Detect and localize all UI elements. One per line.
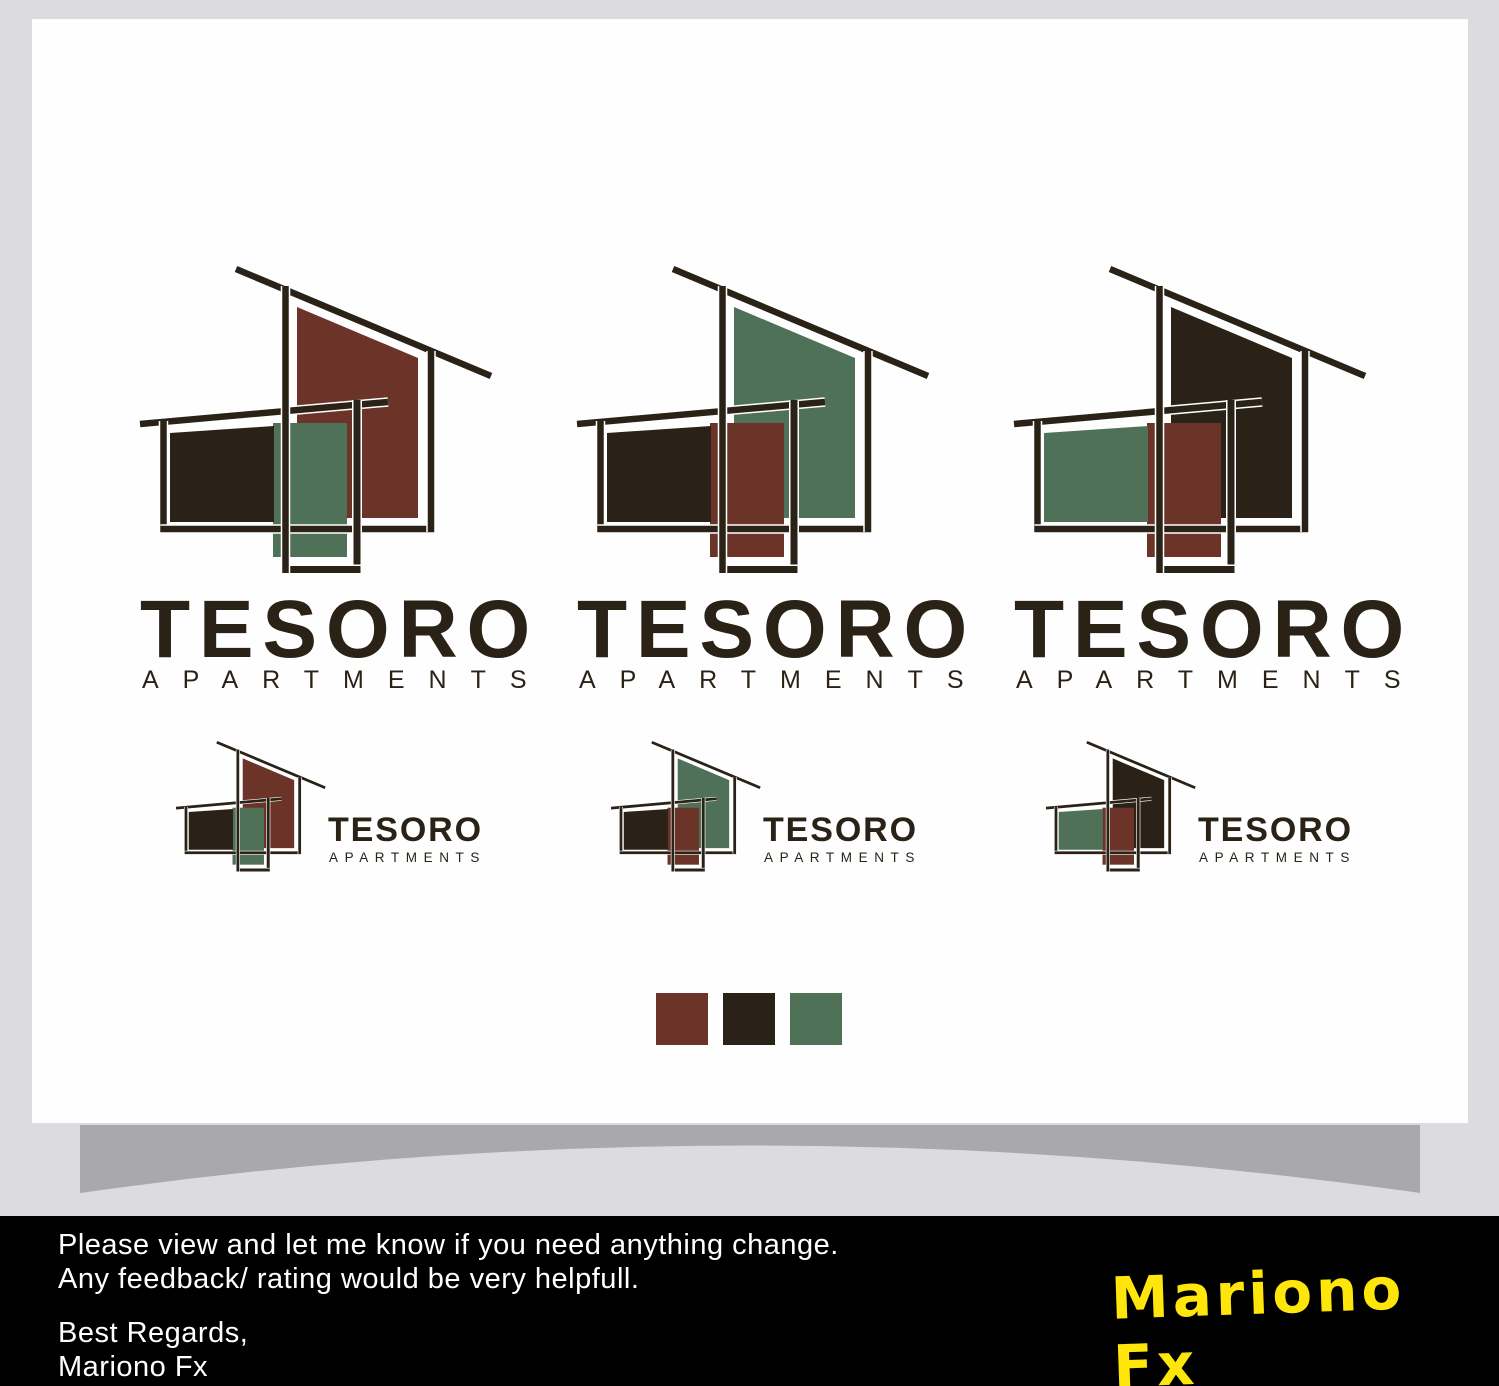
wordmark: TESORO [763, 811, 918, 849]
house-icon [176, 742, 325, 871]
tagline: APARTMENTS [142, 666, 550, 694]
footer-band: Please view and let me know if you need … [0, 1216, 1499, 1386]
artboard-shadow-swoosh [80, 1123, 1420, 1203]
wordmark: TESORO [1014, 584, 1413, 675]
footer-message: Please view and let me know if you need … [58, 1228, 839, 1296]
house-icon [577, 269, 928, 573]
designer-signature: Mariono Fx [1110, 1251, 1499, 1386]
footer-closing1: Best Regards, [58, 1317, 248, 1349]
footer-closing2: Mariono Fx [58, 1351, 208, 1383]
footer-line2: Any feedback/ rating would be very helpf… [58, 1263, 639, 1295]
logo-large-variant-1: TESOROAPARTMENTS [100, 240, 550, 720]
logo-large-variant-2: TESOROAPARTMENTS [537, 240, 987, 720]
color-swatch-green [790, 993, 842, 1045]
house-icon [611, 742, 760, 871]
color-swatch-maroon [656, 993, 708, 1045]
wordmark: TESORO [140, 584, 539, 675]
logo-small-variant-1: TESOROAPARTMENTS [176, 741, 506, 916]
house-icon [1014, 269, 1365, 573]
wordmark: TESORO [577, 584, 976, 675]
wordmark: TESORO [1198, 811, 1353, 849]
footer-line1: Please view and let me know if you need … [58, 1229, 839, 1261]
tagline: APARTMENTS [329, 850, 486, 865]
color-swatch-dark [723, 993, 775, 1045]
tagline: APARTMENTS [1016, 666, 1424, 694]
house-icon [140, 269, 491, 573]
tagline: APARTMENTS [579, 666, 987, 694]
logo-large-variant-3: TESOROAPARTMENTS [974, 240, 1424, 720]
design-proof-page: TESOROAPARTMENTS TESOROAPARTMENTS TESORO… [0, 0, 1499, 1386]
house-icon [1046, 742, 1195, 871]
footer-closing: Best Regards,Mariono Fx [58, 1316, 248, 1384]
tagline: APARTMENTS [764, 850, 921, 865]
tagline: APARTMENTS [1199, 850, 1356, 865]
wordmark: TESORO [328, 811, 483, 849]
logo-small-variant-2: TESOROAPARTMENTS [611, 741, 941, 916]
logo-small-variant-3: TESOROAPARTMENTS [1046, 741, 1376, 916]
shadow-shape [80, 1125, 1420, 1193]
